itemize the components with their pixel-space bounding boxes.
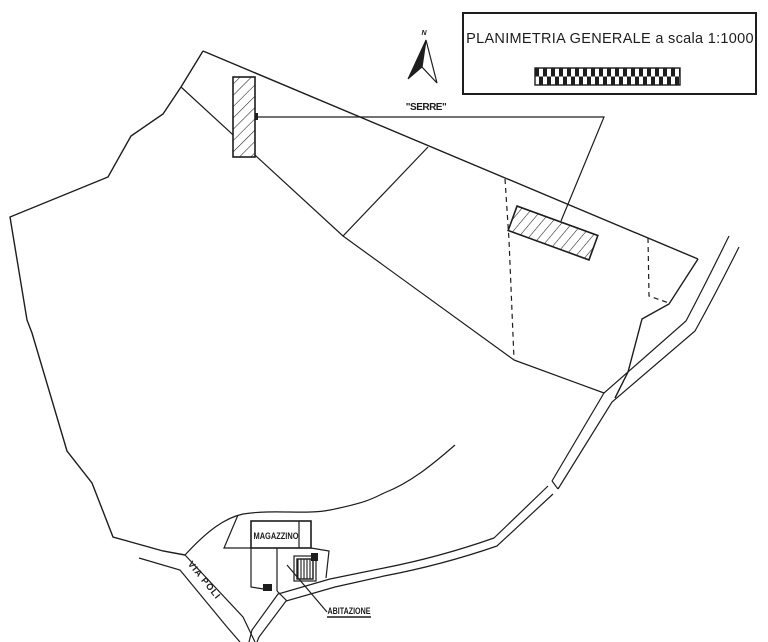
north-label: N (421, 30, 427, 37)
drawing-title: PLANIMETRIA GENERALE a scala 1:1000 (466, 31, 754, 47)
southeast-road (249, 236, 739, 642)
plan-canvas: N PLANIMETRIA GENERALE a scala 1:1000 "S… (0, 0, 768, 642)
title-block: PLANIMETRIA GENERALE a scala 1:1000 (463, 13, 756, 94)
greenhouse-2-body (508, 206, 598, 260)
yard-marker-1 (263, 584, 272, 591)
field-track-curve (185, 445, 455, 555)
property-boundary (10, 51, 698, 555)
boundary-west-south (10, 51, 203, 555)
boundary-east (615, 259, 698, 398)
se-road-bend-cap (552, 481, 558, 489)
plan-labels: "SERRE" MAGAZZINO ABITAZIONE VIA POLI (186, 102, 447, 617)
yard-left-edge (251, 548, 270, 590)
via-poli-label: VIA POLI (186, 559, 223, 601)
yard-right-edge (311, 548, 329, 578)
se-road-upper-rail (552, 236, 729, 481)
site-plan-drawing: N PLANIMETRIA GENERALE a scala 1:1000 "S… (0, 0, 768, 642)
parcel-line-to-road (514, 360, 604, 393)
parcel-line-dashed-center (505, 179, 514, 359)
north-arrow: N (408, 30, 437, 83)
dwelling-building (297, 559, 313, 579)
via-poli-rail2 (139, 558, 240, 642)
scale-bar (535, 68, 680, 85)
greenhouse-1 (233, 77, 255, 157)
dwelling-marker (311, 553, 318, 561)
parcel-line-center (343, 236, 514, 360)
parcel-line-dashed-east (648, 238, 669, 303)
serre-leader-line (255, 117, 604, 221)
serre-label: "SERRE" (406, 102, 447, 113)
greenhouse-leader (251, 113, 604, 221)
magazzino-label: MAGAZZINO (254, 531, 299, 541)
parcel-line-northwest (181, 87, 428, 236)
building-compound (224, 515, 329, 612)
greenhouse-2 (508, 206, 598, 260)
abitazione-label: ABITAZIONE (328, 606, 371, 616)
greenhouse-1-body (233, 77, 255, 157)
